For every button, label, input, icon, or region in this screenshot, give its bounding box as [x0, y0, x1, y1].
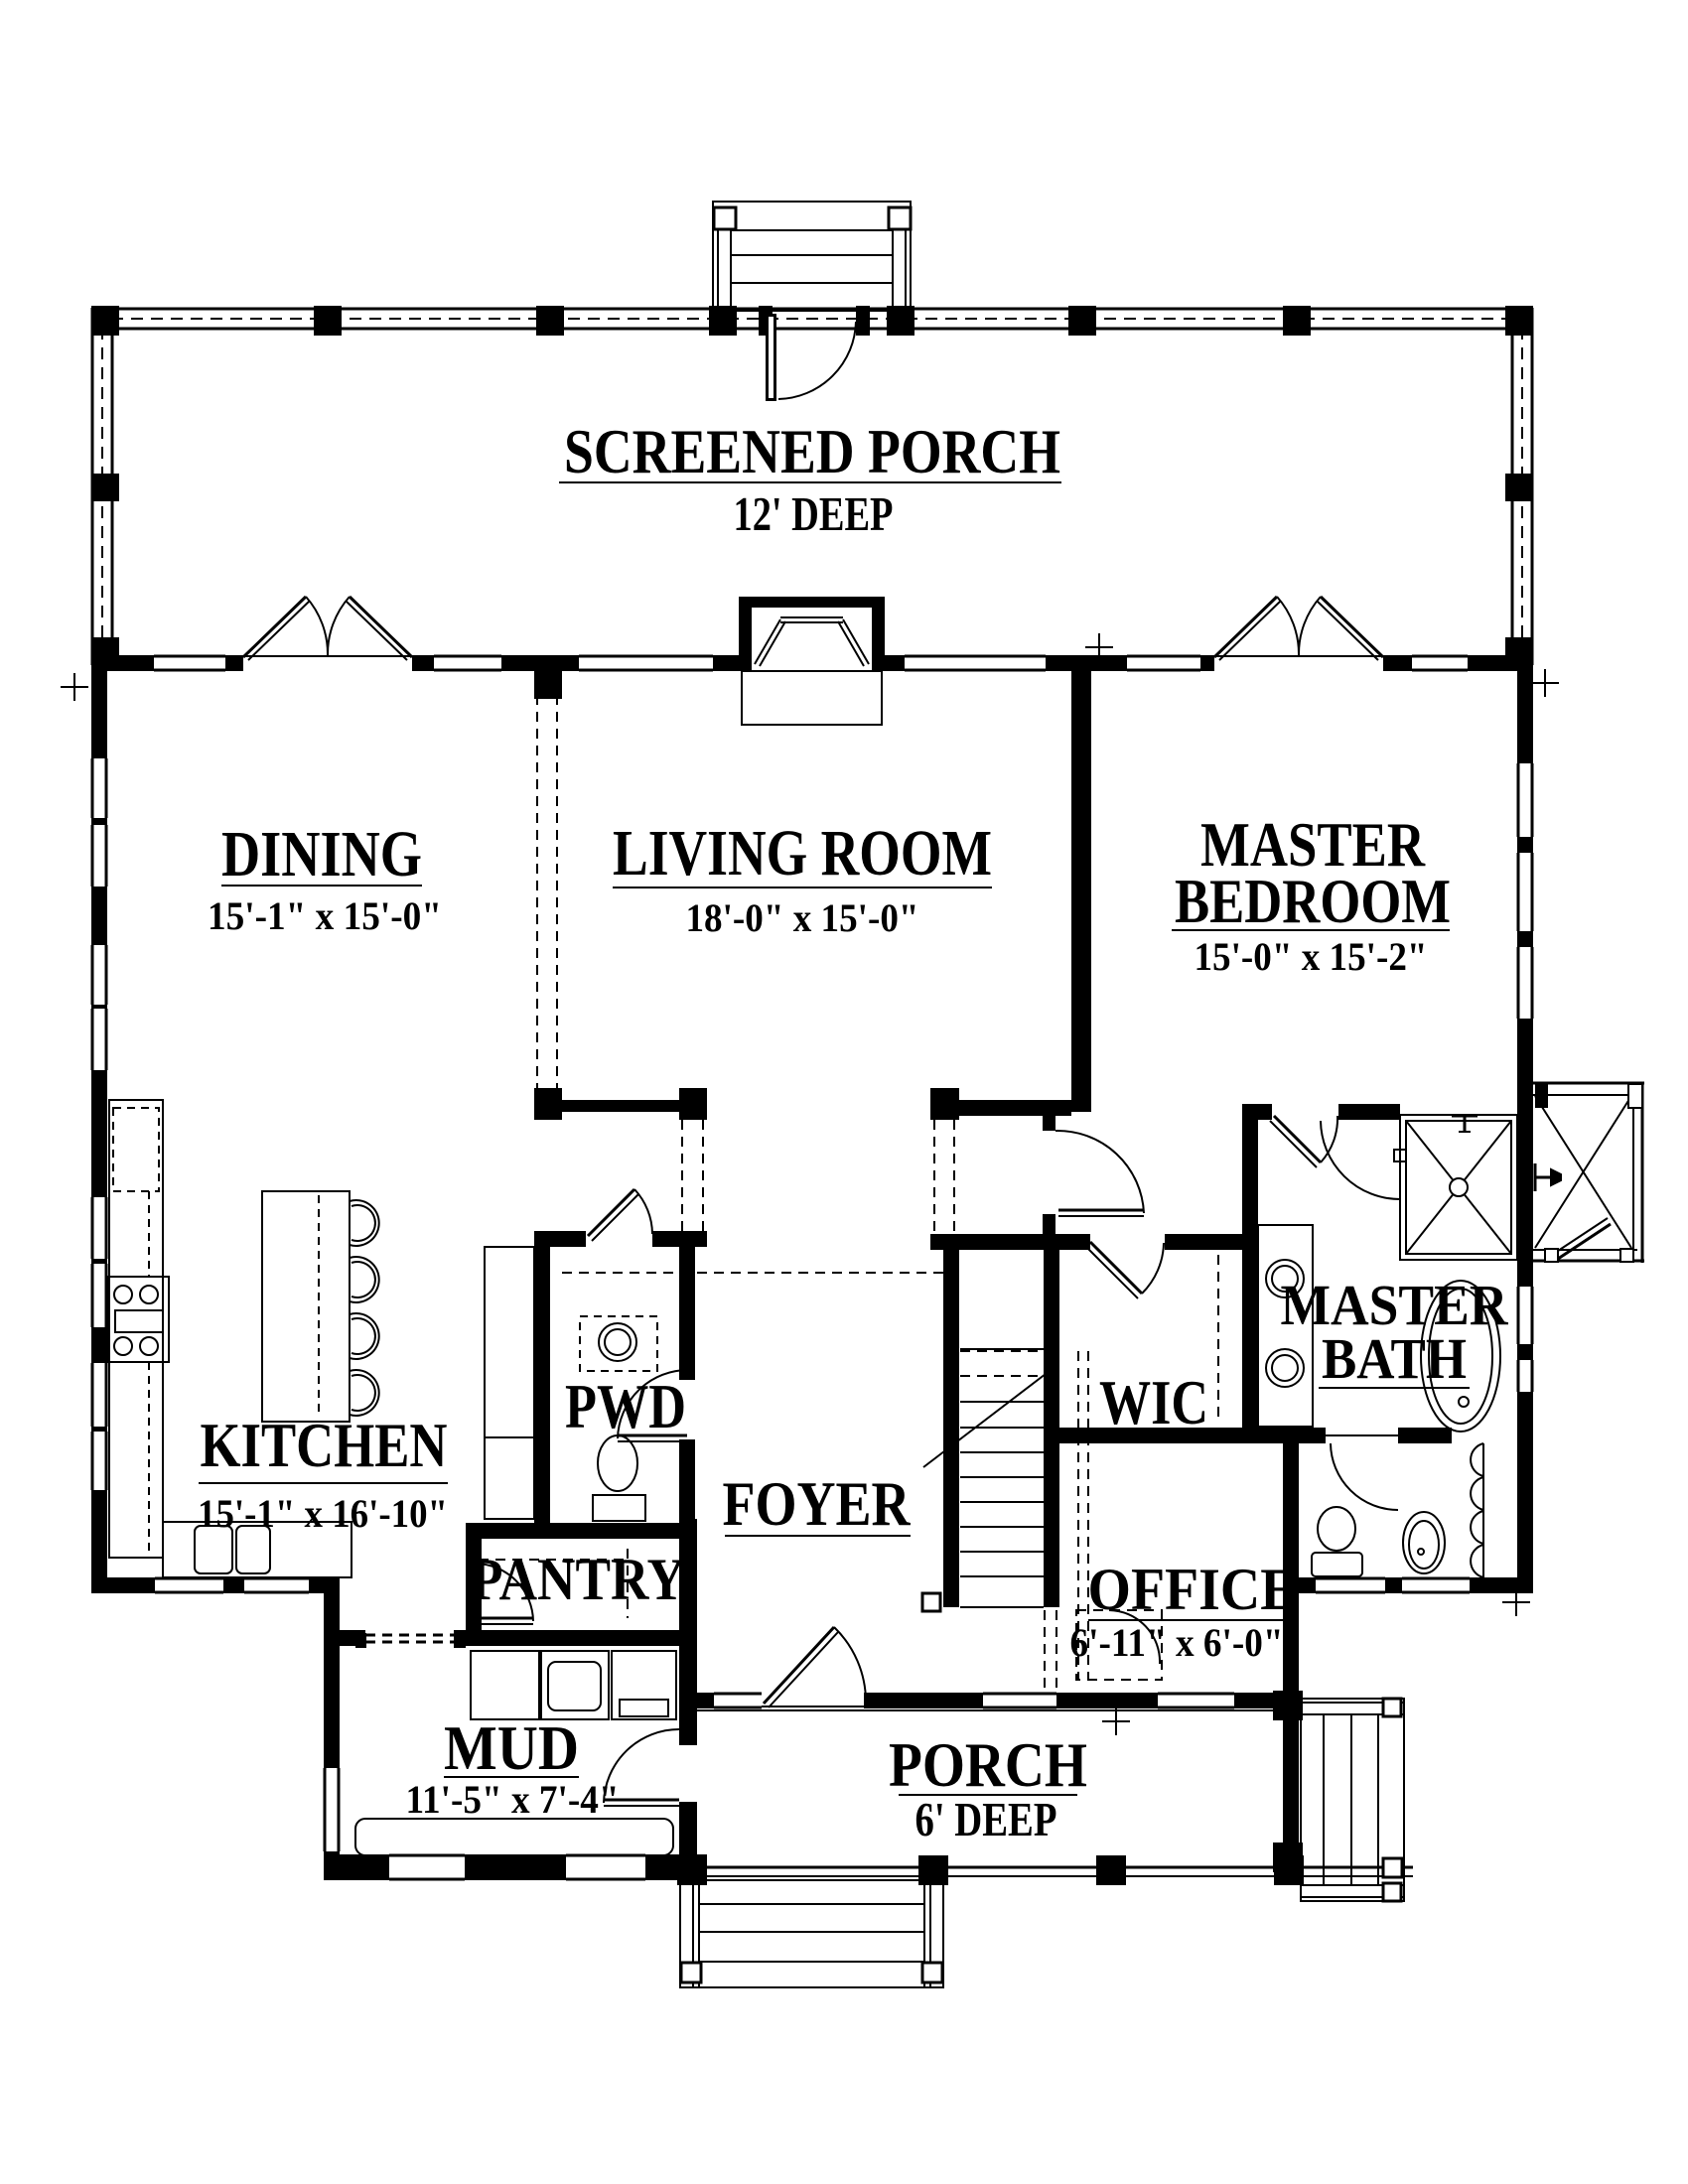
svg-text:LIVING ROOM: LIVING ROOM — [613, 817, 992, 889]
svg-text:BEDROOM: BEDROOM — [1175, 866, 1451, 936]
svg-text:PORCH: PORCH — [889, 1729, 1087, 1800]
svg-text:18'-0" x 15'-0": 18'-0" x 15'-0" — [686, 895, 919, 940]
svg-text:15'-1" x 15'-0": 15'-1" x 15'-0" — [208, 893, 442, 938]
svg-text:PWD: PWD — [565, 1371, 686, 1441]
svg-text:MUD: MUD — [444, 1712, 579, 1783]
svg-text:15'-1" x 16'-10": 15'-1" x 16'-10" — [198, 1491, 448, 1536]
svg-text:BATH: BATH — [1322, 1326, 1467, 1391]
svg-text:FOYER: FOYER — [723, 1468, 912, 1539]
svg-text:WIC: WIC — [1099, 1367, 1208, 1437]
svg-text:PANTRY: PANTRY — [471, 1547, 685, 1612]
svg-text:12' DEEP: 12' DEEP — [734, 486, 894, 541]
svg-text:11'-5" x 7'-4": 11'-5" x 7'-4" — [406, 1777, 620, 1822]
svg-text:6' DEEP: 6' DEEP — [915, 1792, 1057, 1846]
svg-text:DINING: DINING — [221, 818, 422, 890]
svg-text:KITCHEN: KITCHEN — [201, 1410, 448, 1480]
svg-text:15'-0" x 15'-2": 15'-0" x 15'-2" — [1195, 934, 1428, 979]
svg-text:OFFICE: OFFICE — [1088, 1557, 1298, 1622]
svg-text:6'-11" x 6'-0": 6'-11" x 6'-0" — [1070, 1620, 1284, 1665]
svg-text:SCREENED PORCH: SCREENED PORCH — [564, 416, 1060, 486]
